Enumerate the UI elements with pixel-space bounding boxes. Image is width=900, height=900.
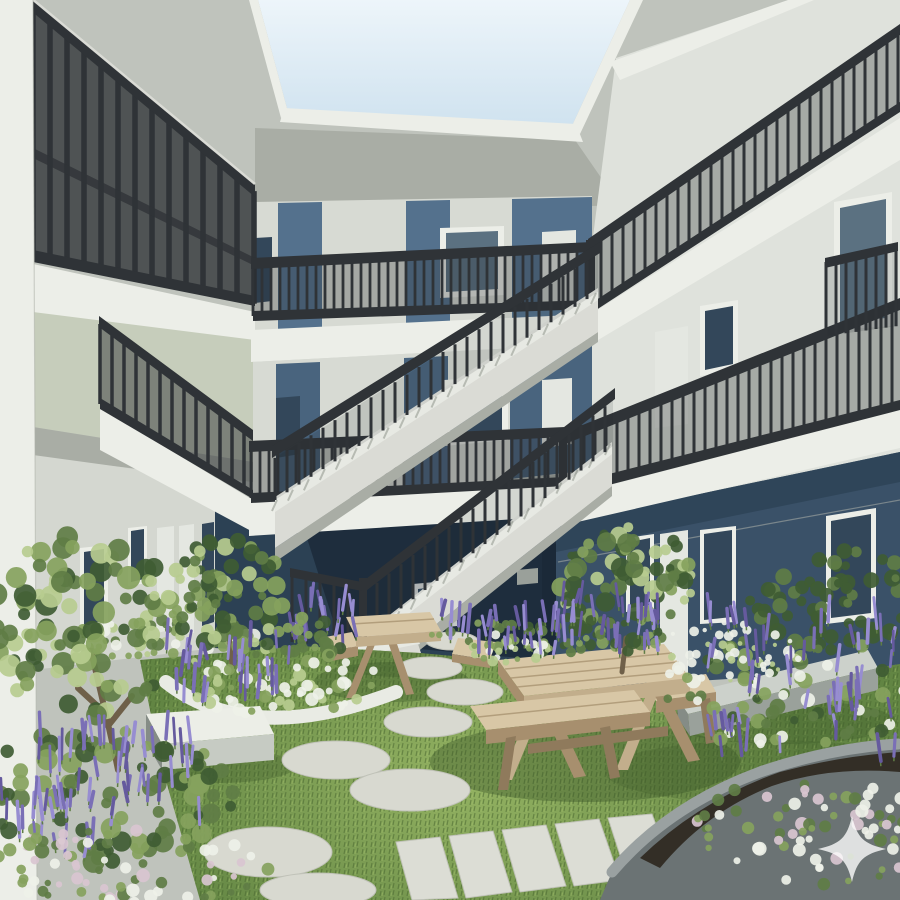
sky [258,0,630,128]
courtyard-scene [0,0,900,900]
courtyard-render [0,0,900,900]
right-window2-glass [705,306,733,370]
skylight-opening [249,0,643,142]
wall-plaque [517,568,538,585]
